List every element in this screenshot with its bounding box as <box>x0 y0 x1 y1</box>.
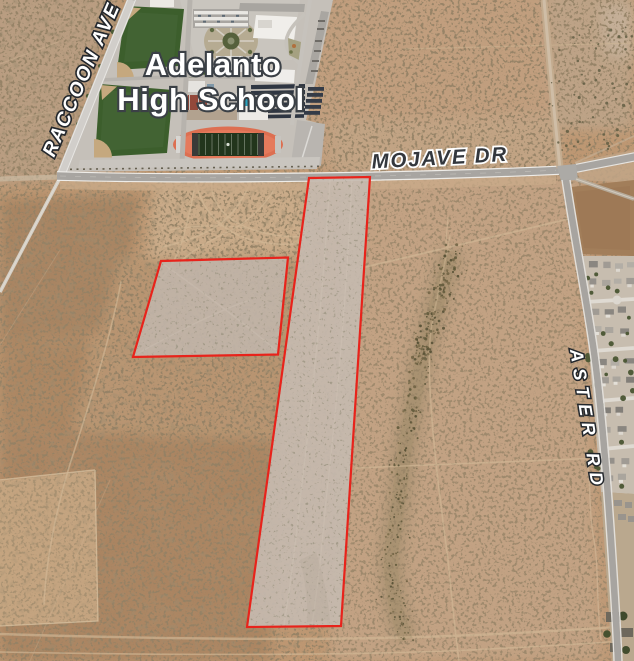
svg-text:Adelanto: Adelanto <box>145 47 282 82</box>
svg-text:High School: High School <box>117 82 304 117</box>
